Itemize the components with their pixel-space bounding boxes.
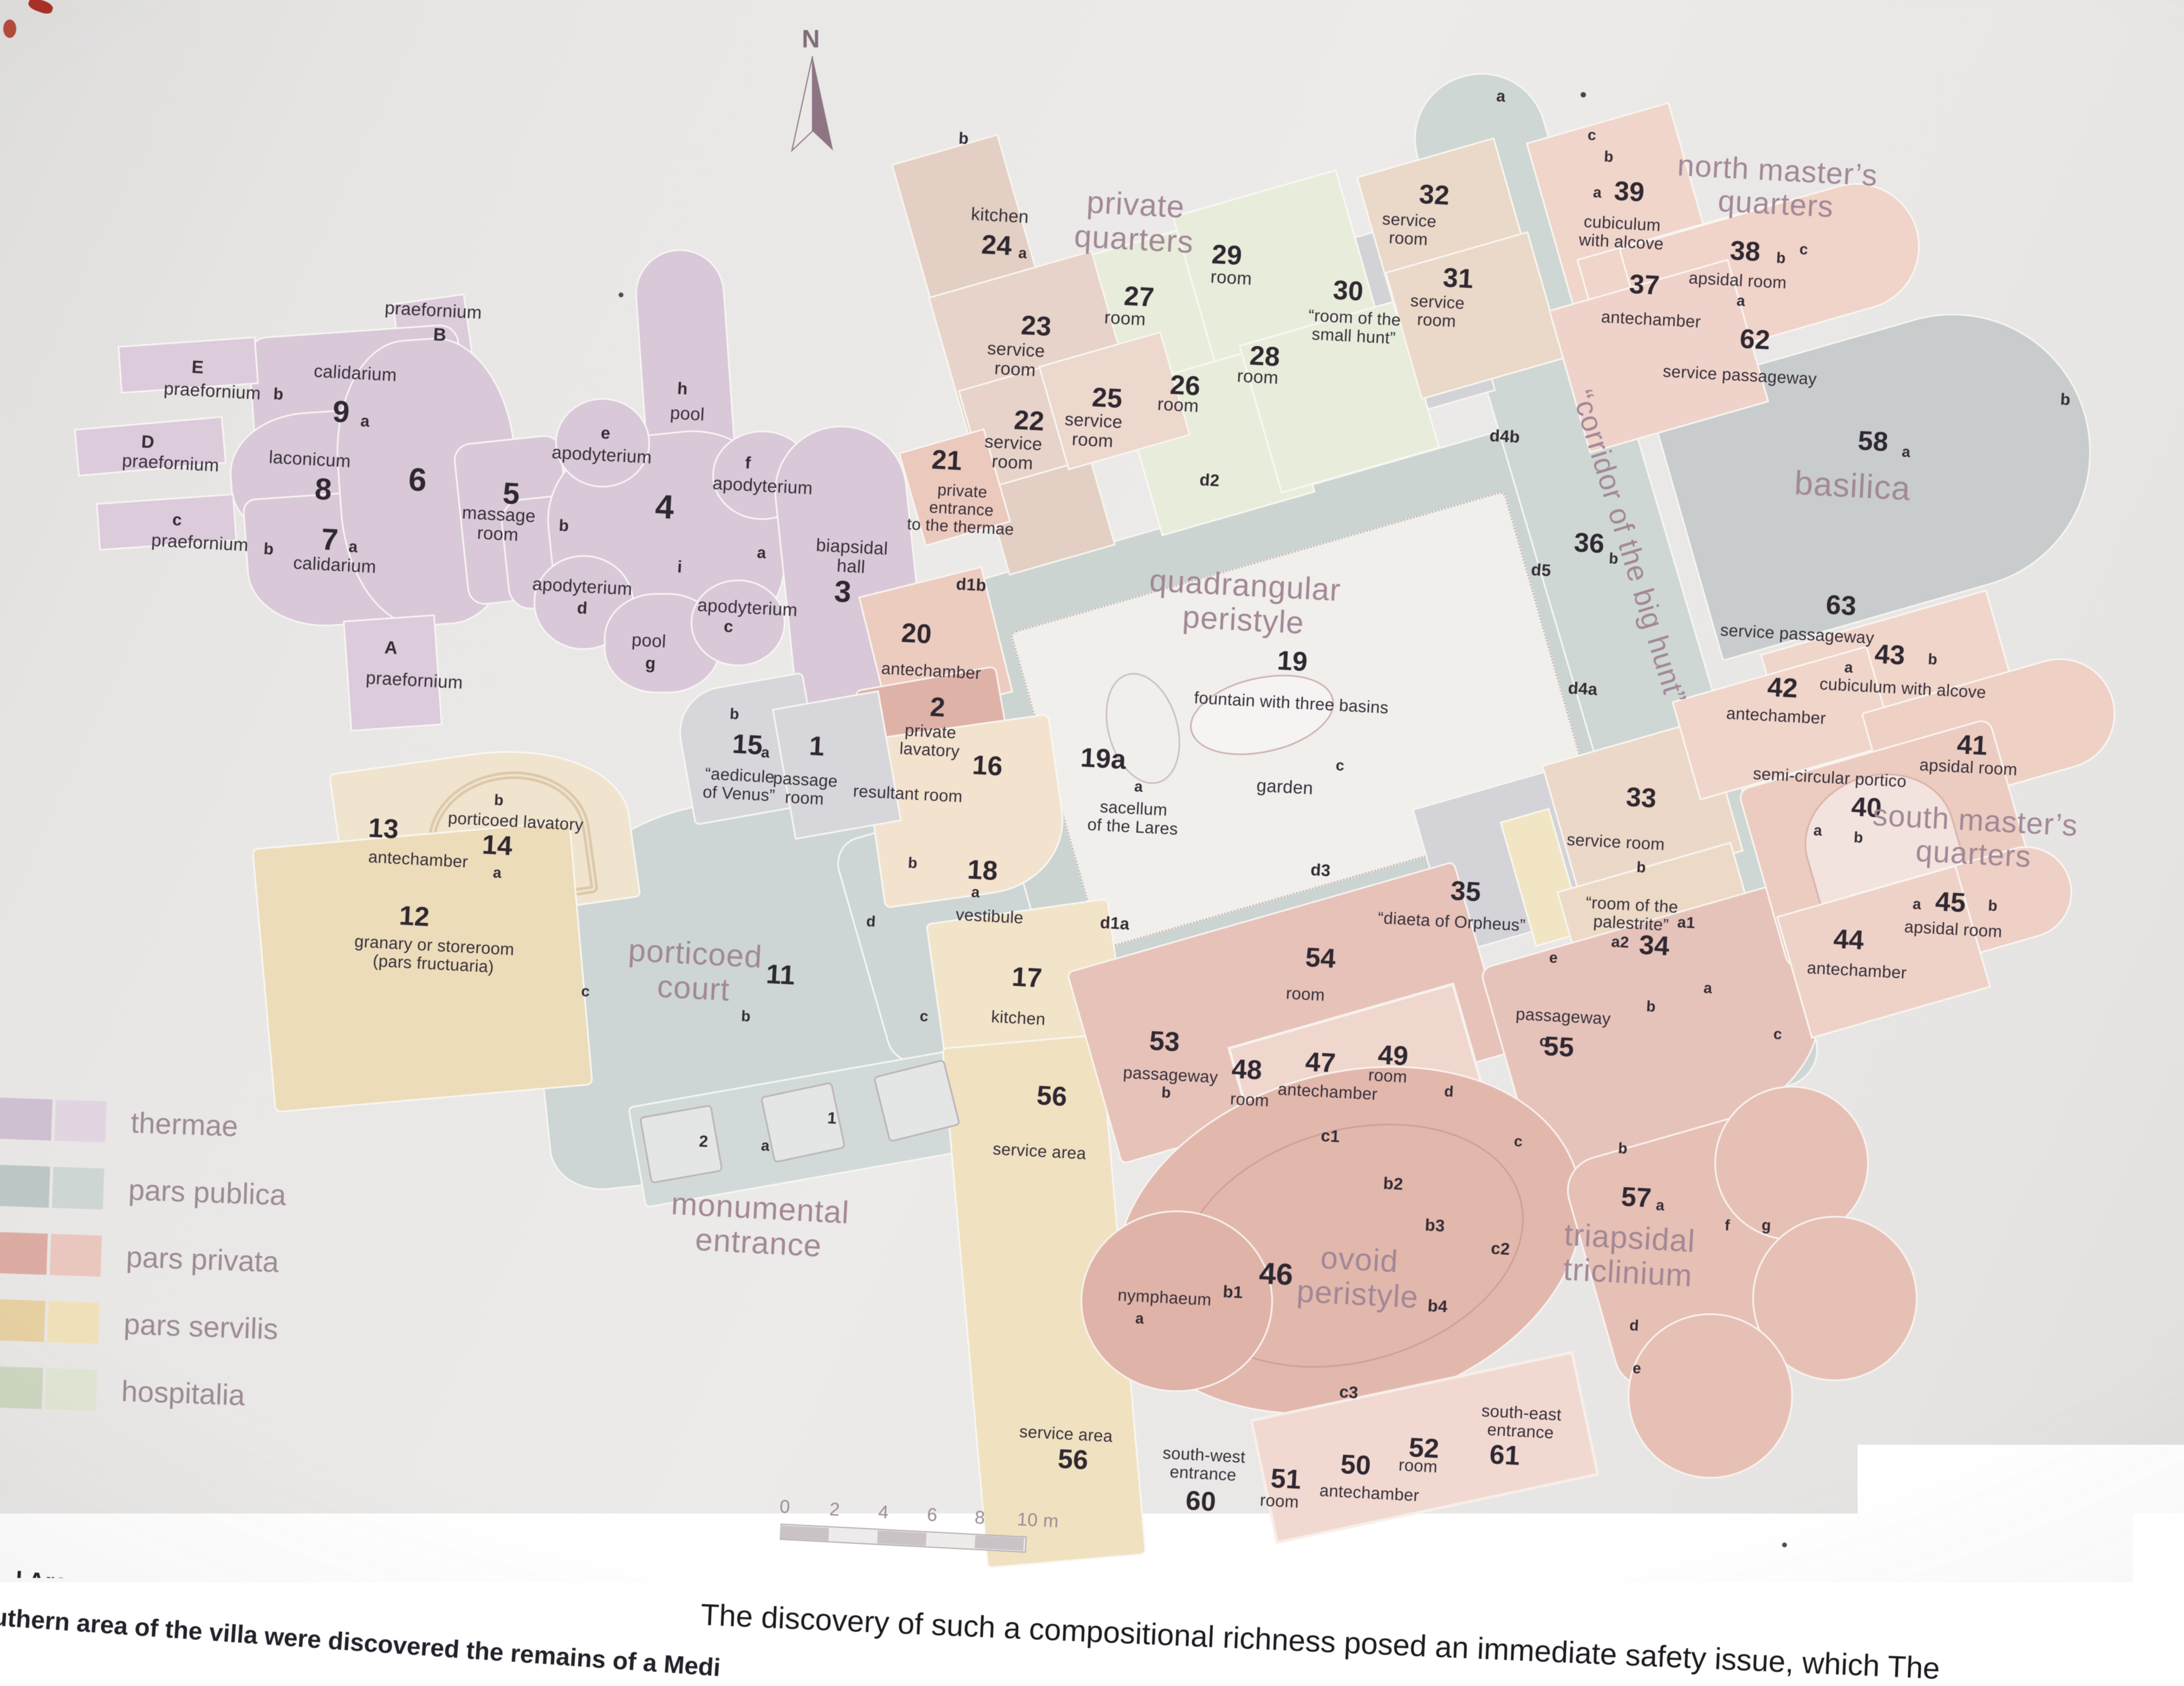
letter: c	[581, 983, 590, 1000]
room-27-label: room	[1104, 308, 1146, 329]
letter: a	[1813, 822, 1822, 839]
praefornium-e-letter: E	[191, 357, 204, 377]
legend: thermaepars publicapars privatapars serv…	[0, 1097, 289, 1443]
legend-swatch-light	[45, 1368, 97, 1411]
scale-tick-10: 10 m	[1017, 1509, 1059, 1532]
room-35-number: 35	[1449, 876, 1481, 907]
letter: c	[1799, 241, 1808, 258]
letter: d	[866, 913, 876, 930]
room-1-label: passage room	[772, 769, 838, 809]
room-47-number: 47	[1304, 1047, 1336, 1078]
room-20-number: 20	[900, 618, 932, 649]
letter: d	[1629, 1317, 1640, 1335]
massage-room-label: massage room	[460, 503, 536, 546]
room-1-number: 1	[809, 731, 825, 761]
room-11-number: 11	[765, 959, 796, 991]
sacellum-label: sacellum of the Lares	[1087, 797, 1180, 839]
ovoid-title: ovoid peristyle	[1296, 1239, 1421, 1314]
letter: 1	[827, 1109, 837, 1128]
letter: b	[1928, 651, 1938, 668]
room-49-label: room	[1368, 1066, 1408, 1086]
pool-g-letter: g	[645, 654, 656, 673]
room-23-number: 23	[1020, 310, 1052, 342]
room-28-label: room	[1237, 366, 1279, 388]
praefornium-a-letter: A	[384, 637, 398, 658]
legend-swatch-dark	[0, 1097, 53, 1141]
room-51-label: room	[1259, 1491, 1299, 1512]
south-masters-title: south master’s quarters	[1870, 798, 2078, 876]
room-9-letter: a	[360, 412, 370, 431]
letter: b	[1161, 1084, 1172, 1102]
room-59-number: 59	[2152, 722, 2184, 754]
room-31-number: 31	[1442, 263, 1474, 294]
letter: 2	[699, 1132, 709, 1151]
legend-swatch-dark	[0, 1232, 48, 1275]
letter: a2	[1611, 934, 1629, 952]
apodyterium-c-letter: c	[723, 617, 733, 636]
room-39-number: 39	[1613, 176, 1645, 207]
room-34-label: “room of the palestrite”	[1584, 893, 1679, 935]
letter: b	[1636, 859, 1647, 876]
letter: b	[2060, 390, 2071, 409]
north-masters-title: north master’s quarters	[1675, 148, 1878, 225]
letter: b	[1604, 148, 1614, 166]
letter: d3	[1310, 861, 1331, 880]
room-39-label: cubiculum with alcove	[1578, 212, 1665, 253]
private-quarters-title: private quarters	[1073, 185, 1196, 260]
letter: i	[677, 558, 683, 577]
pool-h-label: pool	[669, 403, 705, 425]
room-60-number: 60	[1185, 1486, 1217, 1517]
letter: a	[1592, 184, 1602, 201]
room-63-number: 63	[1825, 590, 1857, 621]
room-19a-number: 19a	[1080, 743, 1127, 774]
letter: c1	[1321, 1127, 1341, 1146]
room-31-label: service room	[1409, 291, 1465, 331]
legend-swatch-dark	[0, 1299, 45, 1342]
room-36-number: 36	[1573, 528, 1605, 559]
villa-floor-plan: NpraeforniumBEpraeforniumbcalidarium9ahp…	[0, 0, 2184, 1638]
room-21-label: private entrance to the thermae	[907, 479, 1017, 538]
room-16-number: 16	[971, 750, 1003, 782]
speck	[1581, 92, 1586, 97]
photo-artifact	[27, 0, 55, 16]
praefornium-c-letter: c	[172, 511, 182, 530]
scale-segment	[779, 1526, 829, 1541]
legend-label: pars publica	[128, 1173, 287, 1212]
footer-section-heading: l Area	[15, 1567, 81, 1597]
letter: d1b	[955, 575, 987, 595]
letter: b2	[1383, 1174, 1404, 1194]
letter: a	[1135, 1310, 1144, 1327]
room-26-label: room	[1157, 394, 1199, 416]
letter: c	[1587, 127, 1596, 144]
letter: b	[908, 855, 918, 872]
room-24-letter: a	[1018, 245, 1027, 262]
room-7-number: 7	[321, 522, 340, 556]
room-17-label: kitchen	[991, 1007, 1046, 1028]
letter: b	[1609, 550, 1619, 568]
kitchen-24-label: kitchen	[971, 204, 1029, 227]
scale-tick-8: 8	[974, 1508, 985, 1528]
room-14-number: 14	[481, 830, 513, 861]
legend-swatch-light	[52, 1167, 105, 1209]
scale-segment	[877, 1531, 926, 1546]
room-58-number: 58	[1857, 426, 1889, 457]
letter: a	[1844, 659, 1853, 676]
room-15-number: 15	[731, 729, 763, 760]
room-48-number: 48	[1231, 1054, 1263, 1085]
room-6-number: 6	[407, 461, 427, 498]
room-22-number: 22	[1013, 405, 1045, 437]
letter: e	[1549, 949, 1558, 967]
letter: d	[1444, 1083, 1454, 1101]
room-15-label: “aedicule of Venus”	[702, 764, 776, 805]
letter: b	[741, 1008, 751, 1025]
room-21-number: 21	[931, 445, 963, 476]
passage-room-1	[772, 690, 902, 839]
room-50-number: 50	[1340, 1449, 1371, 1481]
room-13-number: 13	[367, 813, 399, 844]
room-44-number: 44	[1832, 924, 1864, 955]
room-19-number: 19	[1276, 646, 1308, 677]
legend-swatch-light	[54, 1099, 107, 1142]
letter: b	[1646, 998, 1656, 1015]
room-37-number: 37	[1628, 269, 1660, 301]
triclinium-57-apse-s	[1628, 1313, 1793, 1479]
letter: b	[494, 792, 504, 809]
praefornium-c-label: praefornium	[151, 530, 249, 555]
legend-label: pars privata	[126, 1240, 279, 1279]
room-48-label: room	[1230, 1090, 1270, 1110]
room-61-number: 61	[1488, 1440, 1520, 1471]
letter: b	[730, 706, 740, 723]
room-38-number: 38	[1729, 236, 1761, 267]
gate-pier-1	[639, 1104, 723, 1184]
garden-label: garden	[1256, 776, 1314, 798]
room-34-number: 34	[1638, 930, 1670, 961]
scale-tick-2: 2	[829, 1500, 840, 1520]
legend-swatch-dark	[0, 1164, 50, 1208]
letter: a	[492, 864, 502, 882]
scale-segment	[974, 1535, 1024, 1551]
letter: b	[1854, 829, 1864, 847]
legend-label: pars servilis	[123, 1307, 278, 1346]
footer-left-text: uthern area of the villa were discovered…	[0, 1602, 721, 1682]
room-53-number: 53	[1148, 1026, 1180, 1057]
room-57-number: 57	[1620, 1182, 1652, 1213]
letter: a	[1703, 980, 1712, 997]
room-57-letter: a	[1655, 1197, 1665, 1214]
letter: c	[919, 1008, 928, 1025]
letter: a1	[1677, 914, 1695, 933]
letter: g	[1761, 1217, 1772, 1234]
legend-swatch-light	[50, 1234, 102, 1277]
letter: a	[760, 744, 770, 761]
praefornium-e-label: praefornium	[163, 379, 261, 403]
room-46-number: 46	[1258, 1257, 1294, 1292]
apodyterium-e-letter: e	[600, 424, 610, 443]
compass-n: N	[802, 25, 820, 53]
room-45-number: 45	[1934, 887, 1966, 918]
letter: b	[273, 385, 284, 403]
room-56b-number: 56	[1057, 1444, 1089, 1475]
scale-tick-4: 4	[877, 1502, 889, 1523]
room-41-number: 41	[1956, 730, 1988, 761]
thermae-apodyterium-c	[691, 580, 785, 666]
letter: f	[1724, 1217, 1730, 1234]
letter: c	[1539, 1033, 1548, 1050]
photo-artifact	[3, 19, 16, 38]
sw-entrance-label: south-west entrance	[1161, 1444, 1246, 1485]
letter: a	[1496, 87, 1506, 106]
footer-main-text: The discovery of such a compositional ri…	[700, 1597, 1941, 1686]
letter: a	[1134, 778, 1143, 796]
speck	[232, 1583, 236, 1587]
pool-g-label: pool	[631, 630, 666, 652]
scale-tick-0: 0	[779, 1497, 790, 1518]
biapsidal-hall-label: biapsidal hall	[815, 535, 889, 578]
speck	[619, 292, 623, 297]
room-51-number: 51	[1270, 1463, 1302, 1495]
room-7-letter: a	[348, 538, 359, 556]
room-32-number: 32	[1418, 179, 1450, 211]
letter: a	[971, 884, 980, 901]
room-12-number: 12	[398, 901, 430, 932]
room-29-label: room	[1210, 267, 1252, 289]
legend-label: thermae	[130, 1106, 238, 1143]
praefornium-d-label: praefornium	[121, 451, 219, 476]
legend-swatch-light	[47, 1301, 100, 1344]
legend-item-pars-publica: pars publica	[0, 1164, 287, 1216]
letter: b3	[1425, 1216, 1446, 1235]
letter: b	[958, 129, 969, 148]
letter: b1	[1223, 1283, 1244, 1302]
letter: c3	[1339, 1383, 1359, 1402]
room-9-number: 9	[332, 394, 351, 428]
apodyterium-d-letter: d	[576, 598, 588, 617]
room-2-label: private lavatory	[899, 721, 961, 761]
room-4-number: 4	[654, 489, 675, 526]
letter: b	[1618, 1140, 1628, 1157]
pool-h-letter: h	[677, 379, 688, 398]
letter: a	[757, 544, 767, 562]
peristyle-title: quadrangular peristyle	[1147, 563, 1342, 642]
legend-swatch-dark	[0, 1366, 43, 1409]
letter: d2	[1199, 471, 1220, 490]
room-23-label: service room	[986, 338, 1045, 381]
letter: a	[1901, 444, 1910, 461]
villa-plan-sign-photo: { "legend": { "items": [ {"key":"thermae…	[0, 0, 2184, 1638]
room-59-label: lavatory	[2143, 751, 2184, 773]
letter: d1a	[1100, 914, 1130, 934]
letter: b4	[1427, 1297, 1448, 1316]
room-18-number: 18	[966, 855, 998, 886]
praefornium-d-letter: D	[141, 432, 155, 452]
letter: b	[1776, 250, 1786, 267]
room-2-number: 2	[929, 692, 946, 722]
speck	[1782, 1542, 1787, 1547]
apodyterium-f-letter: f	[745, 454, 751, 473]
letter: c2	[1491, 1239, 1511, 1259]
letter: a	[1912, 896, 1921, 913]
room-8-number: 8	[314, 472, 333, 506]
triclinium-title: triapsidal triclinium	[1562, 1218, 1696, 1293]
room-54-number: 54	[1304, 942, 1336, 974]
legend-item-hospitalia: hospitalia	[0, 1365, 280, 1418]
room-43-number: 43	[1874, 639, 1906, 671]
basilica-title: basilica	[1793, 465, 1912, 507]
letter: b	[263, 540, 274, 558]
room-62-number: 62	[1739, 324, 1771, 355]
legend-item-thermae: thermae	[0, 1097, 289, 1149]
room-22-label: service room	[983, 432, 1043, 474]
letter: d5	[1531, 561, 1552, 580]
letter: d4a	[1568, 679, 1598, 699]
se-entrance-label: south-east entrance	[1480, 1402, 1562, 1443]
letter: c	[1773, 1026, 1782, 1043]
legend-item-pars-servilis: pars servilis	[0, 1298, 282, 1351]
room-33-number: 33	[1625, 782, 1657, 813]
room-30-number: 30	[1332, 275, 1364, 307]
letter: b	[1988, 897, 1998, 915]
legend-item-pars-privata: pars privata	[0, 1231, 284, 1284]
room-42-number: 42	[1766, 672, 1798, 704]
room-56-number: 56	[1036, 1080, 1068, 1112]
monumental-title: monumental entrance	[668, 1187, 850, 1265]
letter: e	[1632, 1360, 1641, 1377]
room-25-number: 25	[1091, 382, 1123, 414]
letter: c	[1335, 757, 1344, 774]
north-arrow-icon	[772, 52, 853, 155]
room-54-label: room	[1285, 984, 1325, 1005]
room-18-label: vestibule	[955, 906, 1024, 928]
legend-label: hospitalia	[121, 1375, 245, 1412]
room-24-number: 24	[980, 230, 1012, 261]
court-title: porticoed court	[626, 933, 763, 1009]
room-3-number: 3	[834, 574, 853, 608]
room-52-label: room	[1398, 1456, 1438, 1476]
scale-tick-6: 6	[926, 1505, 938, 1526]
letter: a	[760, 1137, 770, 1155]
praefornium-b-letter: B	[433, 324, 447, 345]
letter: a	[1736, 292, 1745, 310]
room-32-label: service room	[1381, 210, 1437, 249]
letter: d4b	[1489, 427, 1520, 447]
letter: b	[558, 517, 569, 535]
room-30-label: “room of the small hunt”	[1307, 306, 1401, 348]
room-17-number: 17	[1011, 962, 1043, 993]
room-25-label: service room	[1063, 409, 1123, 452]
room-29-number: 29	[1211, 239, 1243, 271]
letter: c	[1513, 1133, 1523, 1150]
